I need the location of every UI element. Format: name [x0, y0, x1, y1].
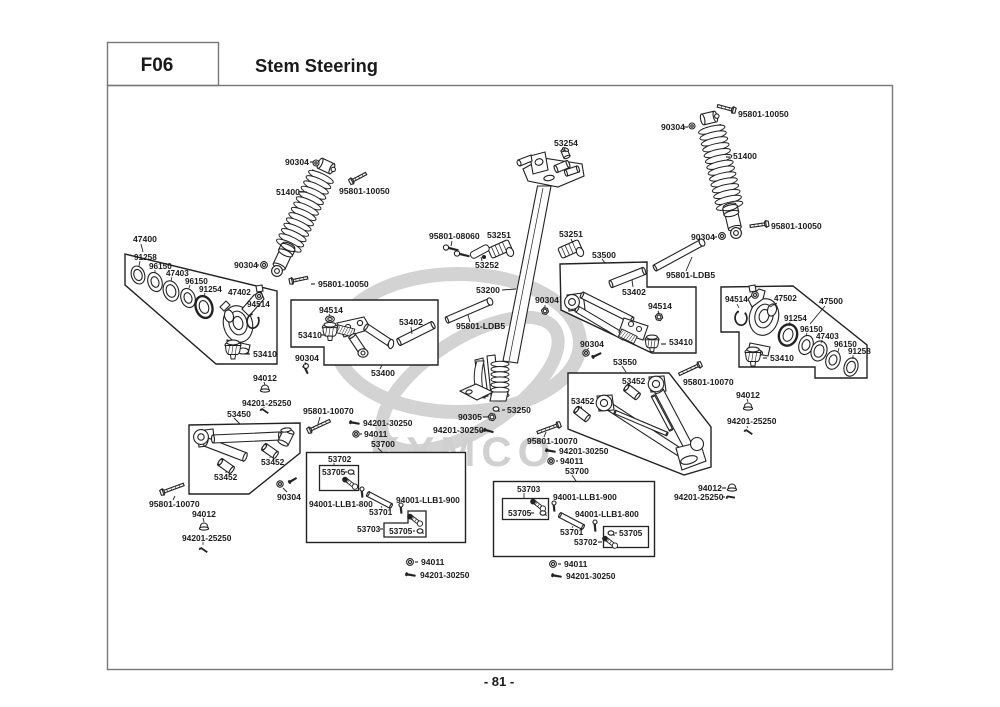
svg-text:94011: 94011: [364, 429, 388, 439]
svg-text:53705: 53705: [619, 528, 643, 538]
svg-text:95801-LDB5: 95801-LDB5: [666, 270, 715, 280]
svg-text:90304: 90304: [285, 157, 309, 167]
svg-text:53703: 53703: [357, 524, 381, 534]
svg-text:90304: 90304: [580, 339, 604, 349]
svg-text:94201-25250: 94201-25250: [242, 398, 292, 408]
svg-text:53500: 53500: [592, 250, 616, 260]
svg-text:90304: 90304: [535, 295, 559, 305]
svg-text:47500: 47500: [819, 296, 843, 306]
svg-text:- 81 -: - 81 -: [484, 674, 514, 689]
svg-text:94514: 94514: [648, 301, 672, 311]
svg-text:94514: 94514: [725, 295, 748, 304]
svg-text:94001-LLB1-800: 94001-LLB1-800: [575, 509, 639, 519]
svg-text:94514: 94514: [319, 305, 343, 315]
svg-text:53701: 53701: [369, 507, 393, 517]
svg-text:94012: 94012: [736, 390, 760, 400]
svg-text:94201-25250: 94201-25250: [674, 492, 724, 502]
svg-text:51400: 51400: [733, 151, 757, 161]
svg-text:53200: 53200: [476, 285, 500, 295]
svg-text:90304: 90304: [295, 353, 319, 363]
svg-text:94012: 94012: [192, 509, 216, 519]
svg-text:53251: 53251: [487, 230, 511, 240]
svg-text:53705: 53705: [508, 508, 532, 518]
svg-text:94201-25250: 94201-25250: [727, 416, 777, 426]
svg-text:53702: 53702: [574, 537, 598, 547]
svg-text:53701: 53701: [560, 527, 584, 537]
svg-text:53705: 53705: [322, 467, 346, 477]
svg-text:91254: 91254: [199, 285, 222, 294]
svg-text:53705: 53705: [389, 526, 413, 536]
svg-text:94011: 94011: [560, 456, 584, 466]
svg-text:47400: 47400: [133, 234, 157, 244]
svg-text:53402: 53402: [622, 287, 646, 297]
svg-text:94001-LLB1-800: 94001-LLB1-800: [309, 499, 373, 509]
svg-text:91254: 91254: [784, 314, 807, 323]
svg-text:53452: 53452: [622, 376, 646, 386]
svg-text:53251: 53251: [559, 229, 583, 239]
svg-text:94201-30250: 94201-30250: [559, 446, 609, 456]
svg-text:95801-10070: 95801-10070: [527, 436, 578, 446]
svg-text:47402: 47402: [228, 288, 251, 297]
svg-text:53254: 53254: [554, 138, 578, 148]
svg-text:51400: 51400: [276, 187, 300, 197]
svg-text:95801-10050: 95801-10050: [339, 186, 390, 196]
svg-text:94514: 94514: [247, 300, 270, 309]
svg-text:91258: 91258: [134, 253, 157, 262]
svg-text:90305: 90305: [458, 412, 482, 422]
svg-text:95801-10070: 95801-10070: [149, 499, 200, 509]
svg-text:95801-10050: 95801-10050: [771, 221, 822, 231]
svg-text:53700: 53700: [371, 439, 395, 449]
svg-text:53400: 53400: [371, 368, 395, 378]
svg-text:90304: 90304: [234, 260, 258, 270]
svg-text:94012: 94012: [253, 373, 277, 383]
svg-text:95801-10050: 95801-10050: [318, 279, 369, 289]
svg-text:53702: 53702: [328, 454, 352, 464]
svg-text:53410: 53410: [298, 330, 322, 340]
svg-text:53410: 53410: [770, 353, 794, 363]
svg-text:94201-30250: 94201-30250: [420, 570, 470, 580]
svg-text:53410: 53410: [669, 337, 693, 347]
svg-text:90304: 90304: [661, 122, 685, 132]
svg-text:91258: 91258: [848, 347, 871, 356]
svg-text:94201-30250: 94201-30250: [566, 571, 616, 581]
svg-text:94201-30250: 94201-30250: [363, 418, 413, 428]
svg-text:53450: 53450: [227, 409, 251, 419]
svg-text:F06: F06: [141, 55, 174, 76]
svg-text:53410: 53410: [253, 349, 277, 359]
svg-text:94201-25250: 94201-25250: [182, 533, 232, 543]
svg-text:94001-LLB1-900: 94001-LLB1-900: [553, 492, 617, 502]
svg-text:53250: 53250: [507, 405, 531, 415]
svg-text:95801-08060: 95801-08060: [429, 231, 480, 241]
svg-text:53452: 53452: [571, 396, 595, 406]
svg-text:53700: 53700: [565, 466, 589, 476]
svg-text:53402: 53402: [399, 317, 423, 327]
svg-text:47502: 47502: [774, 294, 797, 303]
svg-text:95801-10070: 95801-10070: [683, 377, 734, 387]
svg-text:53550: 53550: [613, 357, 637, 367]
svg-text:94011: 94011: [564, 559, 588, 569]
svg-text:94011: 94011: [421, 557, 445, 567]
svg-text:53252: 53252: [475, 260, 499, 270]
svg-text:Stem Steering: Stem Steering: [255, 55, 378, 76]
svg-text:53703: 53703: [517, 484, 541, 494]
svg-text:94001-LLB1-900: 94001-LLB1-900: [396, 495, 460, 505]
svg-text:90304: 90304: [277, 492, 301, 502]
svg-text:94201-30250: 94201-30250: [433, 425, 484, 435]
svg-text:53452: 53452: [214, 472, 238, 482]
svg-text:95801-10070: 95801-10070: [303, 406, 354, 416]
svg-text:95801-LDB5: 95801-LDB5: [456, 321, 505, 331]
svg-text:53452: 53452: [261, 457, 285, 467]
svg-text:95801-10050: 95801-10050: [738, 109, 789, 119]
